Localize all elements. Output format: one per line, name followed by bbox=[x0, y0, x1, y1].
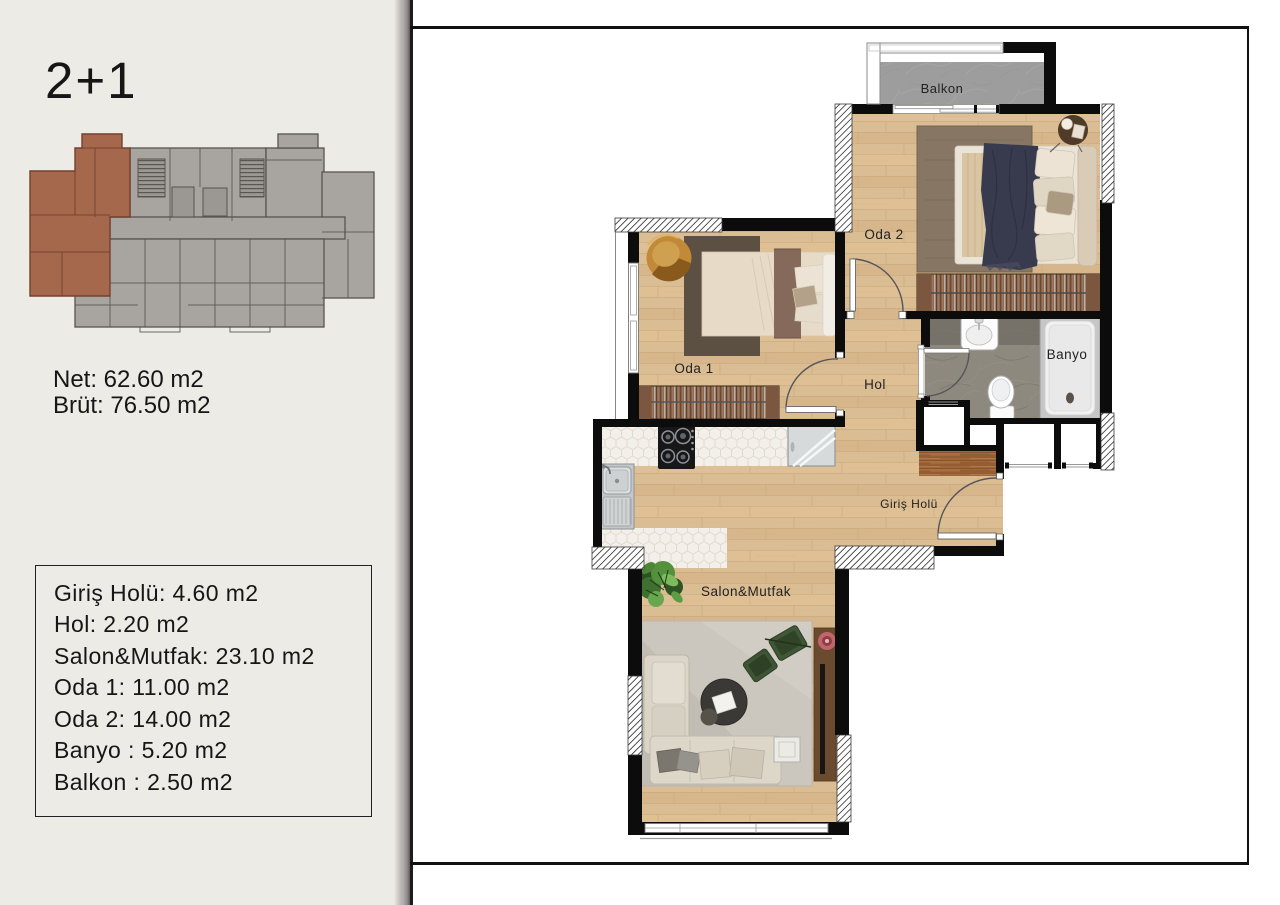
svg-text:Salon&Mutfak: Salon&Mutfak bbox=[701, 584, 791, 599]
svg-text:Oda 2: Oda 2 bbox=[864, 227, 903, 242]
svg-text:Balkon: Balkon bbox=[921, 81, 964, 96]
svg-text:Oda 1: Oda 1 bbox=[674, 361, 713, 376]
svg-text:Banyo: Banyo bbox=[1047, 347, 1088, 362]
svg-text:Hol: Hol bbox=[864, 377, 886, 392]
svg-text:Giriş Holü: Giriş Holü bbox=[880, 497, 938, 511]
